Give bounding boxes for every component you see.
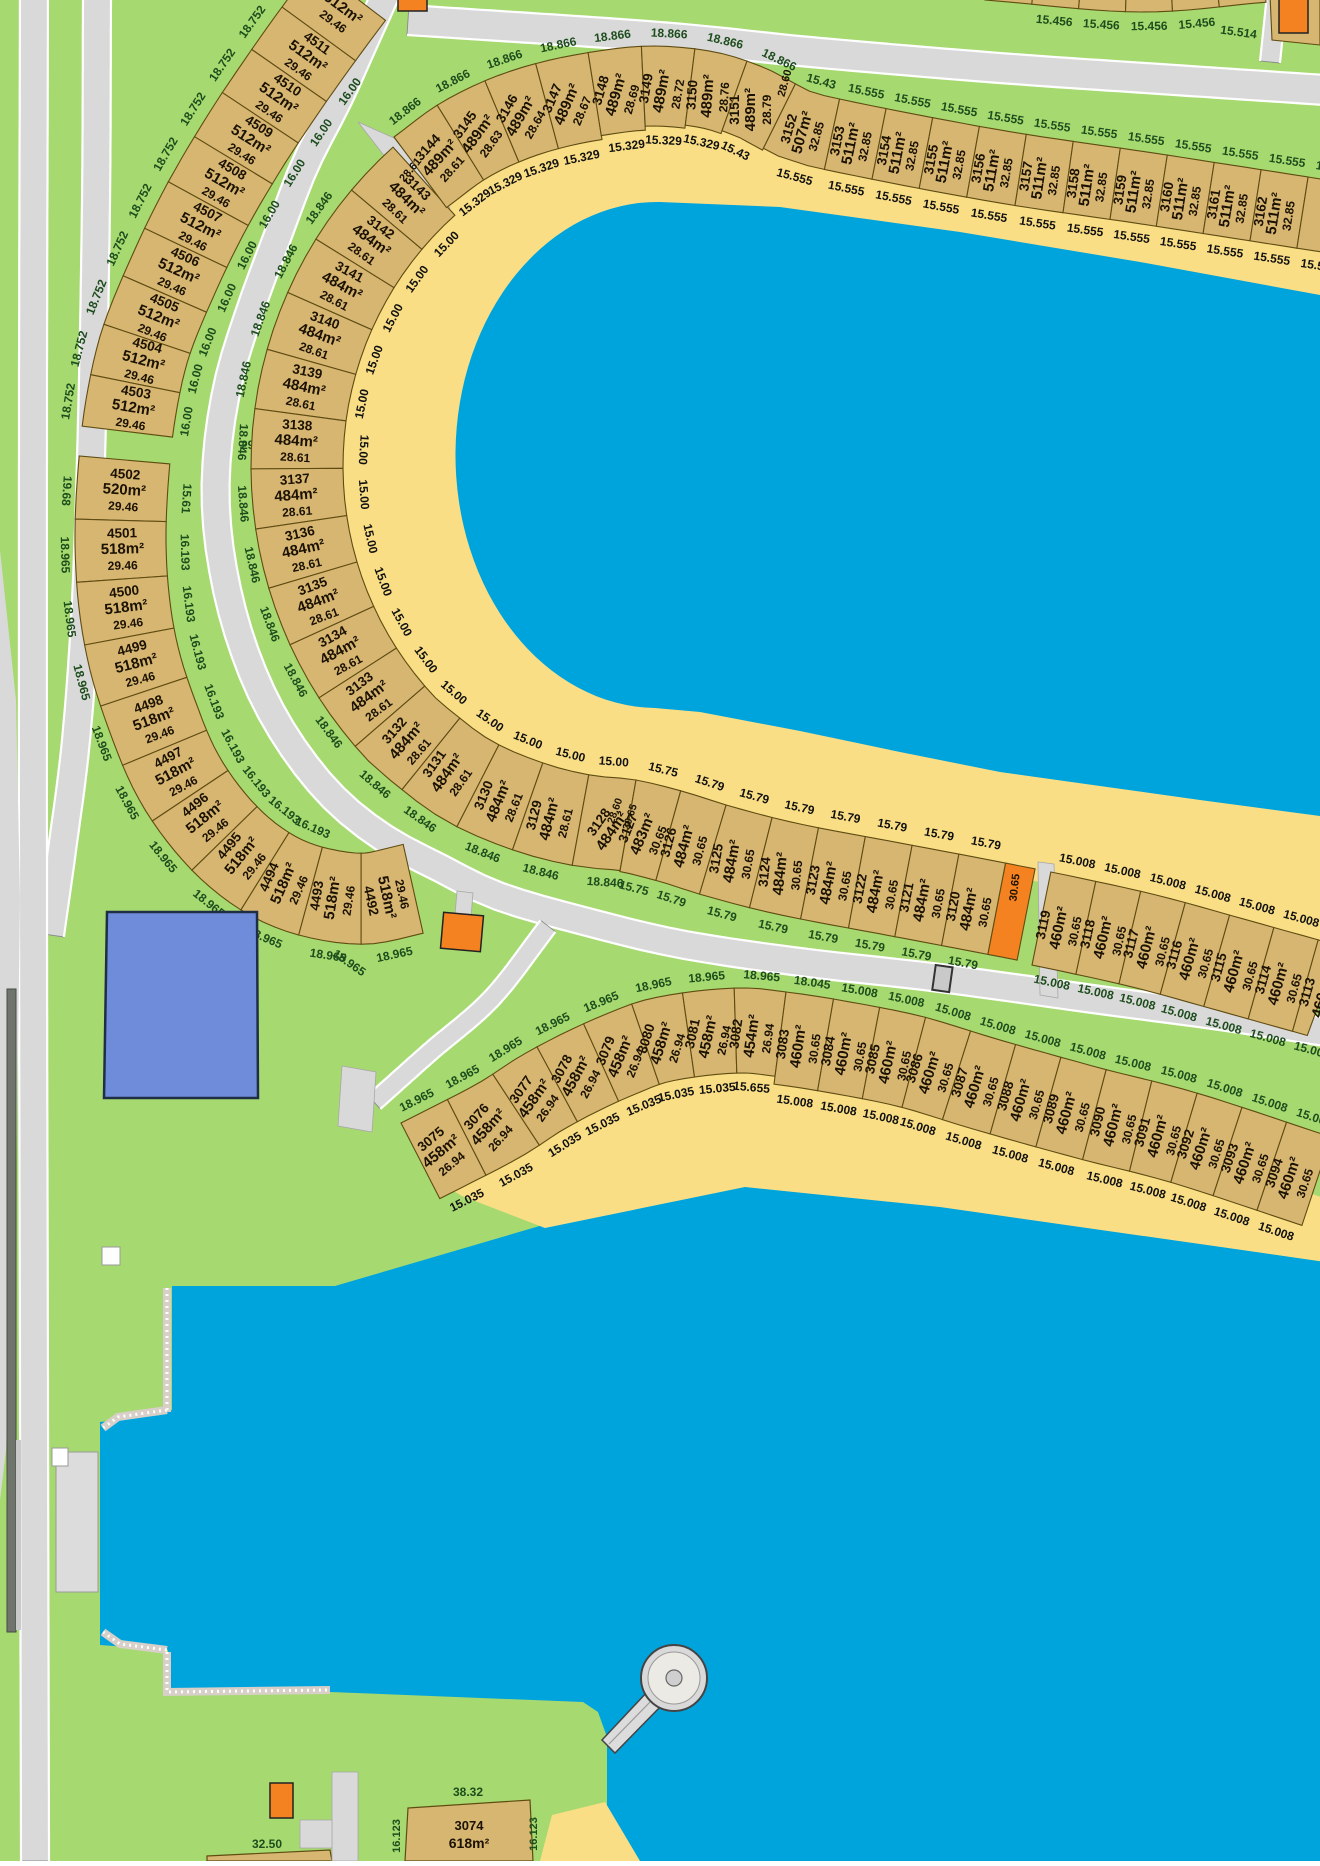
svg-text:489m²: 489m² [698, 74, 718, 118]
svg-text:15.61: 15.61 [179, 483, 195, 514]
svg-text:15.00: 15.00 [598, 753, 629, 769]
svg-text:15.00: 15.00 [356, 434, 372, 465]
svg-text:18.846: 18.846 [235, 423, 251, 461]
svg-text:29.46: 29.46 [108, 499, 139, 515]
svg-text:16.123: 16.123 [528, 1817, 540, 1851]
svg-text:28.61: 28.61 [280, 449, 311, 465]
svg-text:520m²: 520m² [102, 480, 146, 500]
svg-text:15.456: 15.456 [1131, 19, 1168, 33]
svg-text:518m²: 518m² [101, 540, 145, 558]
svg-text:15.329: 15.329 [645, 132, 683, 148]
svg-text:28.79: 28.79 [760, 94, 774, 124]
svg-text:3074: 3074 [455, 1818, 485, 1833]
svg-text:618m²: 618m² [449, 1835, 490, 1851]
svg-text:16.123: 16.123 [391, 1819, 403, 1853]
svg-text:19.68: 19.68 [59, 475, 75, 506]
svg-text:32.50: 32.50 [252, 1837, 282, 1851]
svg-text:15.00: 15.00 [356, 479, 372, 510]
svg-text:4501: 4501 [107, 525, 138, 541]
svg-text:29.46: 29.46 [108, 558, 139, 573]
svg-text:18.866: 18.866 [650, 26, 688, 42]
svg-text:18.846: 18.846 [235, 485, 252, 523]
svg-text:484m²: 484m² [274, 431, 318, 451]
svg-text:18.965: 18.965 [58, 536, 73, 573]
svg-text:3151: 3151 [727, 94, 742, 125]
svg-text:28.61: 28.61 [282, 503, 313, 519]
svg-text:16.193: 16.193 [178, 534, 193, 571]
svg-text:489m²: 489m² [742, 88, 759, 131]
svg-text:38.32: 38.32 [453, 1785, 483, 1799]
svg-text:484m²: 484m² [274, 485, 319, 505]
svg-text:15.456: 15.456 [1083, 16, 1121, 32]
